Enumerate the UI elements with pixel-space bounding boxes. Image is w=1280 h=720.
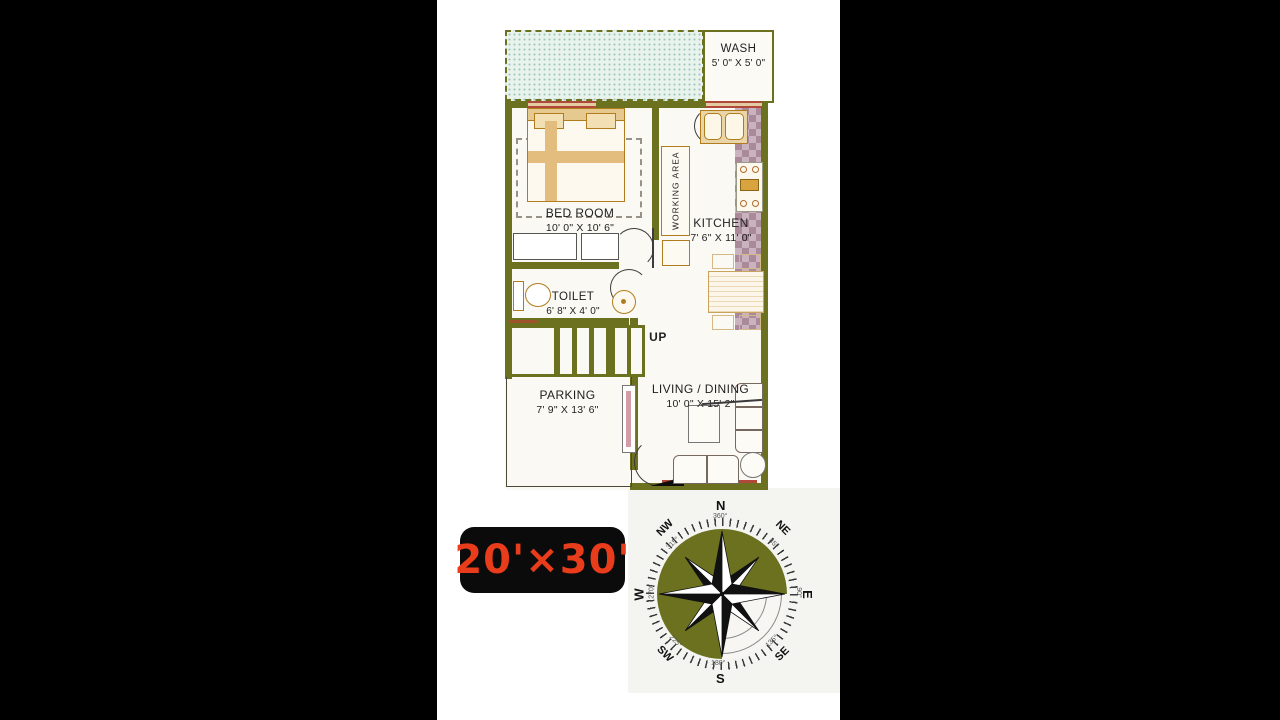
stove-burner bbox=[752, 200, 759, 207]
content-panel: WASH 5' 0" X 5' 0" UP bbox=[437, 0, 840, 720]
room-wash-label: WASH 5' 0" X 5' 0" bbox=[703, 42, 774, 70]
room-parking-label: PARKING 7' 9" X 13' 6" bbox=[505, 388, 630, 417]
toilet-icon bbox=[513, 281, 524, 311]
stair-wall-accent bbox=[510, 320, 538, 323]
room-parking-name: PARKING bbox=[505, 388, 630, 404]
stove-burner bbox=[740, 166, 747, 173]
dining-chair-icon bbox=[739, 315, 761, 330]
video-frame: { "frame": { "background": "#000000", "p… bbox=[0, 0, 1280, 720]
stair-step bbox=[577, 328, 589, 374]
bed-icon bbox=[527, 108, 625, 202]
compass-e-label: E bbox=[800, 590, 815, 599]
room-living-label: LIVING / DINING 10' 0" X 15' 2" bbox=[648, 382, 753, 411]
bed-pillow bbox=[586, 113, 616, 129]
stove-icon bbox=[736, 162, 763, 212]
bedroom-window bbox=[528, 101, 596, 108]
compass-s-label: S bbox=[716, 671, 725, 686]
stairs-icon bbox=[505, 325, 645, 377]
compass-e-degree: 90° bbox=[795, 587, 802, 598]
stairs-up-label: UP bbox=[643, 330, 673, 346]
wall-bedroom-bottom bbox=[505, 262, 619, 269]
bed-runner-horizontal bbox=[528, 151, 624, 163]
room-bedroom-dims: 10' 0" X 10' 6" bbox=[505, 222, 655, 236]
sofa-cushion-line bbox=[736, 429, 762, 431]
stove-burner bbox=[740, 200, 747, 207]
open-terrace-hatch bbox=[505, 30, 704, 101]
room-living-name: LIVING / DINING bbox=[648, 382, 753, 398]
size-badge: 20'×30' bbox=[460, 527, 625, 593]
sink-bowl bbox=[704, 113, 722, 140]
compass-n-degree: 360° bbox=[713, 513, 727, 520]
sink-bowl bbox=[725, 113, 744, 140]
room-toilet-name: TOILET bbox=[538, 290, 608, 305]
compass-w-degree: 270° bbox=[649, 584, 656, 598]
room-toilet-dims: 6' 8" X 4' 0" bbox=[538, 305, 608, 318]
compass-n-label: N bbox=[716, 498, 725, 513]
dining-table-icon bbox=[708, 271, 764, 313]
wardrobe-icon bbox=[581, 233, 619, 260]
room-toilet-label: TOILET 6' 8" X 4' 0" bbox=[538, 290, 608, 318]
room-kitchen-name: KITCHEN bbox=[675, 216, 767, 232]
washbasin-drain bbox=[621, 299, 626, 304]
compass-w-label: W bbox=[632, 588, 647, 600]
stove-oven bbox=[740, 179, 759, 191]
room-wash-dims: 5' 0" X 5' 0" bbox=[703, 57, 774, 70]
dining-chair-icon bbox=[712, 315, 734, 330]
loveseat-icon bbox=[673, 455, 739, 484]
stair-step bbox=[594, 328, 606, 374]
loveseat-divider bbox=[706, 456, 708, 483]
room-kitchen-dims: 7' 6" X 11' 0" bbox=[675, 232, 767, 246]
kitchen-window bbox=[706, 101, 762, 108]
stair-step bbox=[615, 328, 627, 374]
room-parking-dims: 7' 9" X 13' 6" bbox=[505, 404, 630, 418]
stair-landing bbox=[512, 328, 554, 374]
washbasin-icon bbox=[612, 290, 636, 314]
room-bedroom-label: BED ROOM 10' 0" X 10' 6" bbox=[505, 206, 655, 235]
dining-chair-icon bbox=[712, 254, 734, 269]
room-bedroom-name: BED ROOM bbox=[505, 206, 655, 222]
room-kitchen-label: KITCHEN 7' 6" X 11' 0" bbox=[675, 216, 767, 245]
sink-icon bbox=[700, 110, 748, 144]
dining-chair-icon bbox=[739, 254, 761, 269]
room-wash-name: WASH bbox=[703, 42, 774, 57]
size-badge-text: 20'×30' bbox=[454, 537, 630, 583]
stove-burner bbox=[752, 166, 759, 173]
compass-s-degree: 180° bbox=[711, 660, 725, 667]
wardrobe-icon bbox=[513, 233, 577, 260]
round-table-icon bbox=[740, 452, 766, 478]
stair-step bbox=[560, 328, 572, 374]
stair-step bbox=[631, 328, 642, 374]
